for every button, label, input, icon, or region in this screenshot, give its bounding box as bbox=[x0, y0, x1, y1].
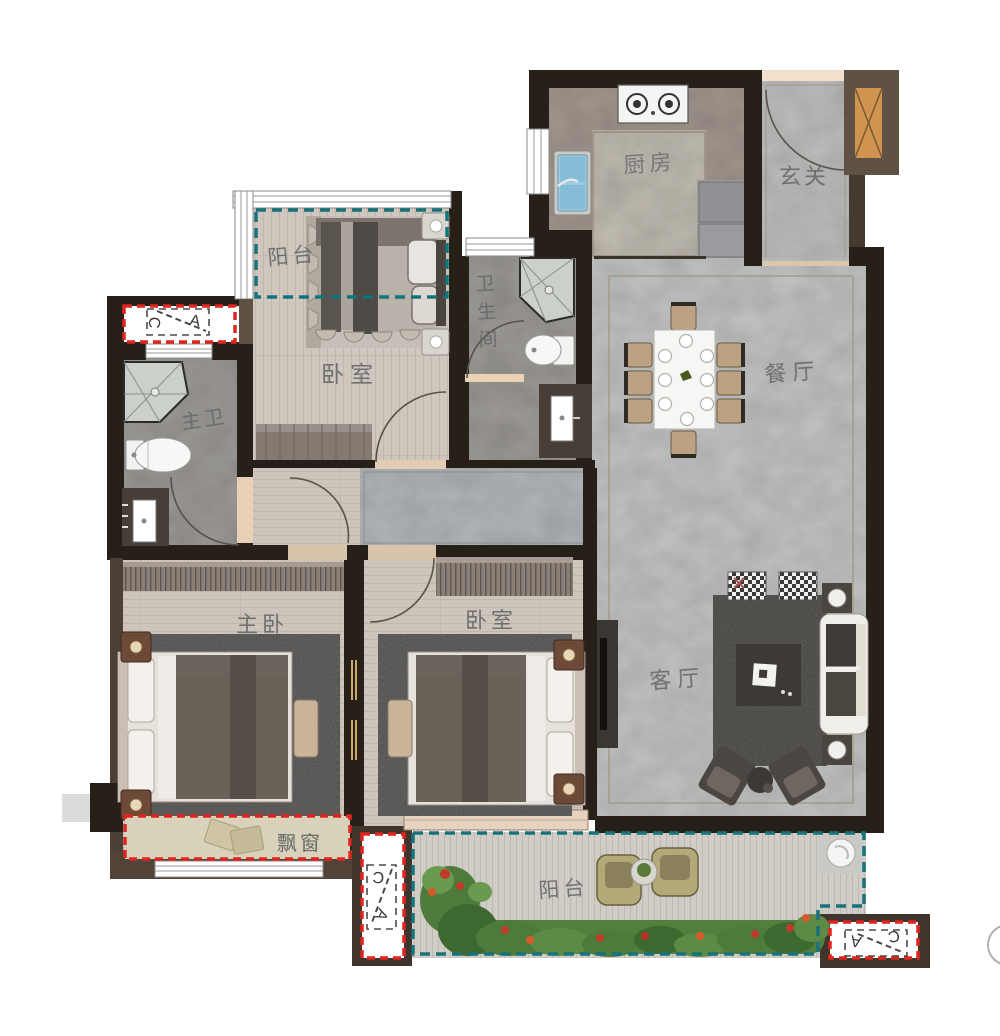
svg-text:卧室: 卧室 bbox=[465, 608, 517, 633]
svg-text:阳台: 阳台 bbox=[267, 243, 319, 270]
svg-text:玄关: 玄关 bbox=[779, 164, 829, 189]
svg-text:阳台: 阳台 bbox=[538, 876, 589, 902]
svg-text:厨房: 厨房 bbox=[623, 149, 677, 178]
svg-text:飘窗: 飘窗 bbox=[277, 832, 323, 855]
svg-text:生: 生 bbox=[477, 301, 497, 324]
svg-text:C: C bbox=[372, 868, 385, 886]
svg-text:主卧: 主卧 bbox=[236, 612, 288, 637]
svg-text:餐厅: 餐厅 bbox=[764, 358, 822, 387]
svg-text:间: 间 bbox=[478, 329, 498, 352]
svg-text:客厅: 客厅 bbox=[649, 665, 707, 694]
svg-text:C: C bbox=[145, 316, 163, 329]
svg-text:卧室: 卧室 bbox=[321, 361, 379, 387]
svg-text:卫: 卫 bbox=[475, 274, 495, 296]
